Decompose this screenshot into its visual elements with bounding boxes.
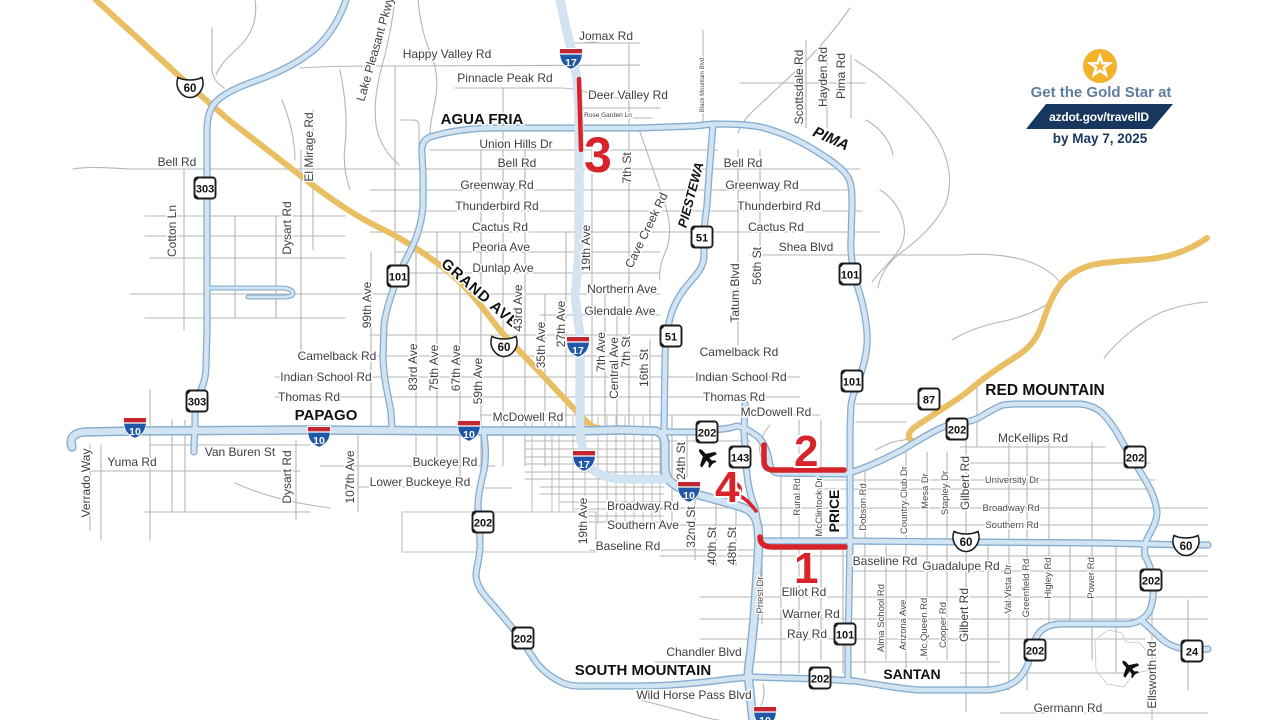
svg-text:Rose Garden Ln: Rose Garden Ln: [584, 112, 632, 119]
svg-text:Tatum Blvd: Tatum Blvd: [728, 263, 742, 322]
svg-text:Buckeye Rd: Buckeye Rd: [413, 455, 478, 469]
svg-text:32nd St: 32nd St: [684, 506, 698, 548]
svg-text:101: 101: [843, 377, 861, 389]
svg-text:by May 7, 2025: by May 7, 2025: [1053, 131, 1148, 146]
svg-text:Bell Rd: Bell Rd: [724, 156, 763, 170]
svg-text:Dobson Rd: Dobson Rd: [858, 483, 869, 531]
svg-text:Thunderbird Rd: Thunderbird Rd: [455, 199, 538, 213]
svg-text:10: 10: [683, 490, 695, 502]
svg-text:99th Ave: 99th Ave: [360, 281, 374, 328]
svg-text:Bell Rd: Bell Rd: [498, 156, 537, 170]
svg-text:10: 10: [313, 435, 325, 447]
svg-text:202: 202: [514, 634, 532, 646]
svg-text:Southern Rd: Southern Rd: [985, 520, 1038, 531]
svg-text:67th Ave: 67th Ave: [449, 344, 463, 391]
svg-text:Get the Gold Star at: Get the Gold Star at: [1031, 84, 1172, 101]
svg-text:Hayden Rd: Hayden Rd: [816, 47, 830, 107]
svg-text:Indian School Rd: Indian School Rd: [695, 370, 786, 384]
svg-text:Cooper Rd: Cooper Rd: [938, 602, 949, 648]
svg-text:Jomax Rd: Jomax Rd: [579, 29, 633, 43]
svg-text:60: 60: [1180, 541, 1193, 553]
svg-text:Greenfield Rd: Greenfield Rd: [1021, 559, 1032, 618]
svg-text:Cotton Ln: Cotton Ln: [165, 205, 179, 257]
svg-text:PAPAGO: PAPAGO: [295, 407, 358, 424]
svg-text:Dunlap Ave: Dunlap Ave: [472, 261, 533, 275]
svg-text:University Dr: University Dr: [985, 475, 1039, 486]
svg-text:Gilbert Rd: Gilbert Rd: [957, 588, 971, 642]
svg-text:Van Buren St: Van Buren St: [205, 445, 276, 459]
svg-text:AGUA FRIA: AGUA FRIA: [441, 111, 524, 128]
svg-text:7th Ave: 7th Ave: [594, 332, 608, 372]
svg-text:16th St: 16th St: [637, 348, 651, 387]
svg-text:101: 101: [389, 272, 407, 284]
svg-text:7th St: 7th St: [620, 152, 634, 184]
svg-text:Mc Queen Rd: Mc Queen Rd: [919, 598, 930, 657]
svg-text:Germann Rd: Germann Rd: [1034, 701, 1103, 715]
svg-text:17: 17: [565, 57, 577, 69]
svg-text:7th St: 7th St: [619, 336, 633, 368]
svg-text:Scottsdale Rd: Scottsdale Rd: [792, 50, 806, 125]
svg-text:202: 202: [948, 425, 966, 437]
svg-text:Cactus Rd: Cactus Rd: [748, 220, 804, 234]
svg-text:40th St: 40th St: [705, 526, 719, 565]
svg-text:51: 51: [696, 233, 708, 245]
svg-text:3: 3: [584, 127, 612, 183]
svg-text:RED MOUNTAIN: RED MOUNTAIN: [985, 382, 1104, 399]
svg-text:Southern Ave: Southern Ave: [607, 518, 679, 532]
svg-text:Higley Rd: Higley Rd: [1043, 557, 1054, 598]
svg-text:azdot.gov/travelID: azdot.gov/travelID: [1049, 110, 1149, 124]
svg-text:35th Ave: 35th Ave: [534, 321, 548, 368]
svg-text:Ray Rd: Ray Rd: [787, 627, 827, 641]
svg-text:Dysart Rd: Dysart Rd: [280, 201, 294, 254]
svg-text:143: 143: [731, 453, 749, 465]
svg-text:Val Vista Dr: Val Vista Dr: [1003, 564, 1014, 613]
svg-text:Mesa Dr: Mesa Dr: [920, 473, 931, 509]
svg-text:Union Hills Dr: Union Hills Dr: [479, 137, 552, 151]
svg-text:Wild Horse Pass Blvd: Wild Horse Pass Blvd: [636, 688, 751, 702]
svg-text:19th Ave: 19th Ave: [576, 497, 590, 544]
svg-text:101: 101: [836, 630, 854, 642]
svg-text:Ellsworth Rd: Ellsworth Rd: [1145, 641, 1159, 708]
svg-text:McDowell Rd: McDowell Rd: [741, 405, 812, 419]
svg-text:Thunderbird Rd: Thunderbird Rd: [737, 199, 820, 213]
svg-text:El Mirage Rd: El Mirage Rd: [302, 112, 316, 181]
svg-text:McClintock Dr: McClintock Dr: [814, 477, 825, 536]
svg-text:Warner Rd: Warner Rd: [782, 607, 840, 621]
svg-text:24th St: 24th St: [674, 441, 688, 480]
svg-text:107th Ave: 107th Ave: [343, 450, 357, 503]
svg-text:10: 10: [129, 426, 141, 438]
svg-text:Baseline Rd: Baseline Rd: [853, 554, 918, 568]
svg-text:Baseline Rd: Baseline Rd: [596, 539, 661, 553]
svg-text:303: 303: [196, 184, 214, 196]
svg-text:Broadway Rd: Broadway Rd: [607, 499, 679, 513]
svg-text:56th St: 56th St: [750, 246, 764, 285]
svg-text:McDowell Rd: McDowell Rd: [493, 410, 564, 424]
svg-text:SANTAN: SANTAN: [883, 666, 940, 682]
svg-text:60: 60: [184, 83, 197, 95]
svg-text:Shea Blvd: Shea Blvd: [779, 240, 834, 254]
svg-text:202: 202: [1142, 576, 1160, 588]
svg-text:202: 202: [1026, 646, 1044, 658]
svg-text:Arizona Ave: Arizona Ave: [898, 600, 909, 651]
svg-text:Greenway Rd: Greenway Rd: [460, 178, 533, 192]
svg-text:Deer Valley Rd: Deer Valley Rd: [588, 88, 668, 102]
svg-text:Gilbert Rd: Gilbert Rd: [958, 456, 972, 510]
svg-text:Power Rd: Power Rd: [1086, 557, 1097, 599]
svg-text:Alma School Rd: Alma School Rd: [876, 584, 887, 652]
svg-text:Priest Dr: Priest Dr: [755, 577, 766, 614]
svg-text:75th Ave: 75th Ave: [427, 344, 441, 391]
svg-text:Northern Ave: Northern Ave: [587, 282, 657, 296]
svg-text:51: 51: [665, 332, 677, 344]
svg-text:Verrado Way: Verrado Way: [79, 449, 93, 518]
svg-text:Lower Buckeye Rd: Lower Buckeye Rd: [370, 475, 471, 489]
svg-text:Greenway Rd: Greenway Rd: [725, 178, 798, 192]
svg-text:60: 60: [498, 342, 511, 354]
svg-text:Cactus Rd: Cactus Rd: [472, 220, 528, 234]
svg-text:19th Ave: 19th Ave: [579, 224, 593, 271]
svg-text:Black Mountain Blvd: Black Mountain Blvd: [700, 58, 706, 112]
svg-text:202: 202: [811, 674, 829, 686]
svg-text:Thomas Rd: Thomas Rd: [278, 390, 340, 404]
svg-text:59th Ave: 59th Ave: [471, 357, 485, 404]
svg-text:Country Club Dr: Country Club Dr: [899, 466, 910, 534]
svg-text:Yuma Rd: Yuma Rd: [107, 455, 156, 469]
svg-text:Broadway Rd: Broadway Rd: [982, 503, 1039, 514]
svg-text:Camelback Rd: Camelback Rd: [700, 345, 779, 359]
svg-text:Dysart Rd: Dysart Rd: [280, 450, 294, 503]
svg-text:Guadalupe Rd: Guadalupe Rd: [922, 559, 999, 573]
svg-text:Elliot Rd: Elliot Rd: [782, 585, 827, 599]
svg-text:202: 202: [474, 518, 492, 530]
svg-text:87: 87: [923, 395, 935, 407]
svg-text:Pima Rd: Pima Rd: [834, 53, 848, 99]
svg-text:Pinnacle Peak Rd: Pinnacle Peak Rd: [457, 71, 552, 85]
svg-text:60: 60: [960, 537, 973, 549]
svg-text:10: 10: [759, 715, 771, 720]
svg-text:Indian School Rd: Indian School Rd: [280, 370, 371, 384]
svg-text:83rd Ave: 83rd Ave: [406, 343, 420, 390]
svg-text:Camelback Rd: Camelback Rd: [298, 349, 377, 363]
svg-text:24: 24: [1186, 647, 1199, 659]
svg-text:Stapley Dr: Stapley Dr: [940, 471, 951, 515]
svg-text:McKellips Rd: McKellips Rd: [998, 431, 1068, 445]
svg-text:43rd Ave: 43rd Ave: [511, 284, 525, 331]
svg-text:10: 10: [463, 429, 475, 441]
svg-text:2: 2: [794, 427, 818, 476]
svg-text:202: 202: [698, 428, 716, 440]
svg-text:4: 4: [715, 463, 740, 512]
svg-text:101: 101: [841, 270, 859, 282]
svg-text:27th Ave: 27th Ave: [554, 300, 568, 347]
svg-text:17: 17: [572, 345, 584, 357]
svg-text:Peoria Ave: Peoria Ave: [472, 240, 530, 254]
svg-text:202: 202: [1126, 453, 1144, 465]
svg-text:303: 303: [188, 397, 206, 409]
svg-text:PRICE: PRICE: [826, 490, 842, 533]
svg-text:Rural Rd: Rural Rd: [792, 478, 803, 516]
svg-text:17: 17: [578, 459, 590, 471]
svg-text:SOUTH MOUNTAIN: SOUTH MOUNTAIN: [575, 662, 711, 679]
svg-text:Thomas Rd: Thomas Rd: [703, 390, 765, 404]
svg-text:Chandler Blvd: Chandler Blvd: [666, 645, 741, 659]
svg-text:Bell Rd: Bell Rd: [158, 155, 197, 169]
svg-text:Glendale Ave: Glendale Ave: [584, 304, 655, 318]
svg-text:Happy Valley Rd: Happy Valley Rd: [403, 47, 492, 61]
svg-text:48th St: 48th St: [725, 526, 739, 565]
